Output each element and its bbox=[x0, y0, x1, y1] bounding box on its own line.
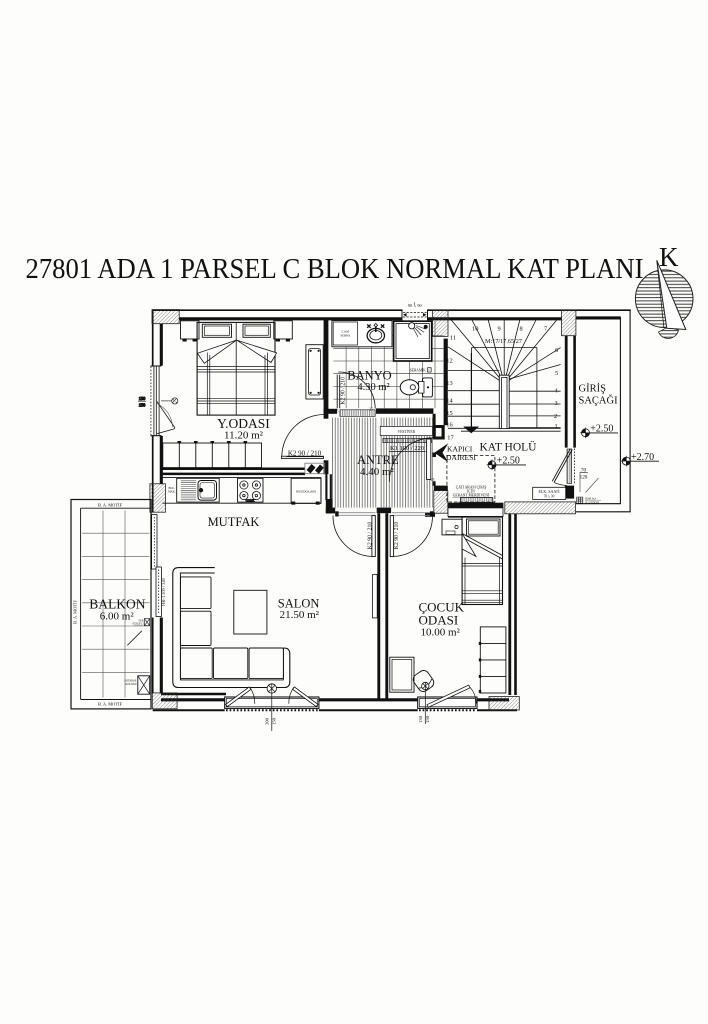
svg-text:B. A. MOTİF: B. A. MOTİF bbox=[98, 701, 122, 706]
svg-text:SDM 3x3: SDM 3x3 bbox=[585, 497, 597, 500]
svg-text:13: 13 bbox=[446, 380, 452, 387]
svg-text:120: 120 bbox=[580, 474, 588, 480]
svg-text:150: 150 bbox=[139, 396, 145, 401]
svg-text:GİRİŞ: GİRİŞ bbox=[579, 383, 607, 395]
svg-text:K1 100 / 220: K1 100 / 220 bbox=[390, 445, 424, 452]
svg-text:150: 150 bbox=[271, 717, 276, 725]
svg-text:25: 25 bbox=[431, 478, 435, 482]
svg-text:150: 150 bbox=[139, 402, 145, 407]
svg-text:27801 ADA 1 PARSEL C BLOK NORM: 27801 ADA 1 PARSEL C BLOK NORMAL KAT PLA… bbox=[26, 254, 644, 285]
svg-text:150: 150 bbox=[425, 715, 430, 723]
svg-text:M:17/17.65/27: M:17/17.65/27 bbox=[485, 338, 522, 345]
svg-text:5: 5 bbox=[555, 370, 558, 377]
svg-text:90: 90 bbox=[417, 303, 421, 308]
svg-text:K2 90 / 210: K2 90 / 210 bbox=[368, 522, 374, 550]
svg-text:KAT HOLÜ: KAT HOLÜ bbox=[480, 440, 538, 454]
svg-text:21.50 m²: 21.50 m² bbox=[280, 609, 320, 621]
svg-text:4.30 m²: 4.30 m² bbox=[357, 382, 389, 393]
svg-text:ELK. SAATİ: ELK. SAATİ bbox=[538, 489, 560, 494]
svg-text:GERANT MERDİVENİ: GERANT MERDİVENİ bbox=[453, 493, 490, 498]
svg-text:16: 16 bbox=[446, 422, 452, 429]
svg-text:25: 25 bbox=[335, 409, 339, 413]
svg-text:SÜZGECİ: SÜZGECİ bbox=[132, 623, 143, 626]
svg-text:70 x 30: 70 x 30 bbox=[544, 495, 555, 499]
svg-text:1: 1 bbox=[555, 423, 558, 430]
svg-text:BUZDOLABI: BUZDOLABI bbox=[296, 490, 316, 494]
svg-text:11.20 m²: 11.20 m² bbox=[224, 429, 264, 441]
svg-text:MAK.: MAK. bbox=[168, 489, 176, 493]
svg-text:9: 9 bbox=[498, 326, 501, 333]
svg-text:ODASI: ODASI bbox=[419, 613, 459, 628]
svg-text:14: 14 bbox=[446, 398, 453, 405]
svg-text:11: 11 bbox=[450, 335, 456, 342]
svg-text:6.00 m²: 6.00 m² bbox=[100, 610, 135, 622]
svg-text:17: 17 bbox=[447, 434, 454, 441]
svg-text:10.00 m²: 10.00 m² bbox=[421, 626, 461, 638]
svg-text:MUTFAK: MUTFAK bbox=[208, 515, 260, 529]
svg-text:SEHPA: SEHPA bbox=[340, 334, 351, 338]
svg-text:4: 4 bbox=[555, 387, 559, 394]
svg-text:90: 90 bbox=[408, 303, 412, 308]
svg-text:25: 25 bbox=[369, 408, 373, 412]
svg-text:HK-1 200 / 240: HK-1 200 / 240 bbox=[161, 577, 166, 605]
svg-text:200: 200 bbox=[265, 717, 270, 725]
svg-text:K2 90 / 210: K2 90 / 210 bbox=[341, 377, 347, 405]
svg-text:VESTİYER: VESTİYER bbox=[398, 429, 416, 434]
svg-text:SERAMİK: SERAMİK bbox=[410, 367, 427, 372]
svg-text:130: 130 bbox=[418, 715, 423, 723]
svg-text:12: 12 bbox=[446, 357, 452, 364]
svg-text:K2 90 / 210: K2 90 / 210 bbox=[288, 449, 322, 457]
svg-text:15: 15 bbox=[446, 410, 452, 417]
svg-text:2: 2 bbox=[554, 413, 557, 420]
svg-text:10: 10 bbox=[472, 326, 478, 333]
svg-text:SU GİDERİ: SU GİDERİ bbox=[585, 501, 599, 504]
svg-text:OCAK: OCAK bbox=[246, 499, 255, 503]
svg-text:8: 8 bbox=[520, 326, 523, 333]
svg-text:6: 6 bbox=[555, 347, 558, 354]
svg-text:B. A. MOTİF: B. A. MOTİF bbox=[98, 503, 122, 508]
svg-text:K: K bbox=[659, 242, 679, 272]
svg-text:KOLONU: KOLONU bbox=[125, 683, 136, 686]
svg-text:DAİRESİ: DAİRESİ bbox=[446, 453, 476, 462]
svg-text:B. A. MOTİF: B. A. MOTİF bbox=[73, 599, 78, 623]
svg-text:3: 3 bbox=[555, 400, 558, 407]
svg-text:SAÇAĞI: SAÇAĞI bbox=[579, 395, 619, 407]
svg-text:K2 90 / 210: K2 90 / 210 bbox=[394, 522, 400, 550]
